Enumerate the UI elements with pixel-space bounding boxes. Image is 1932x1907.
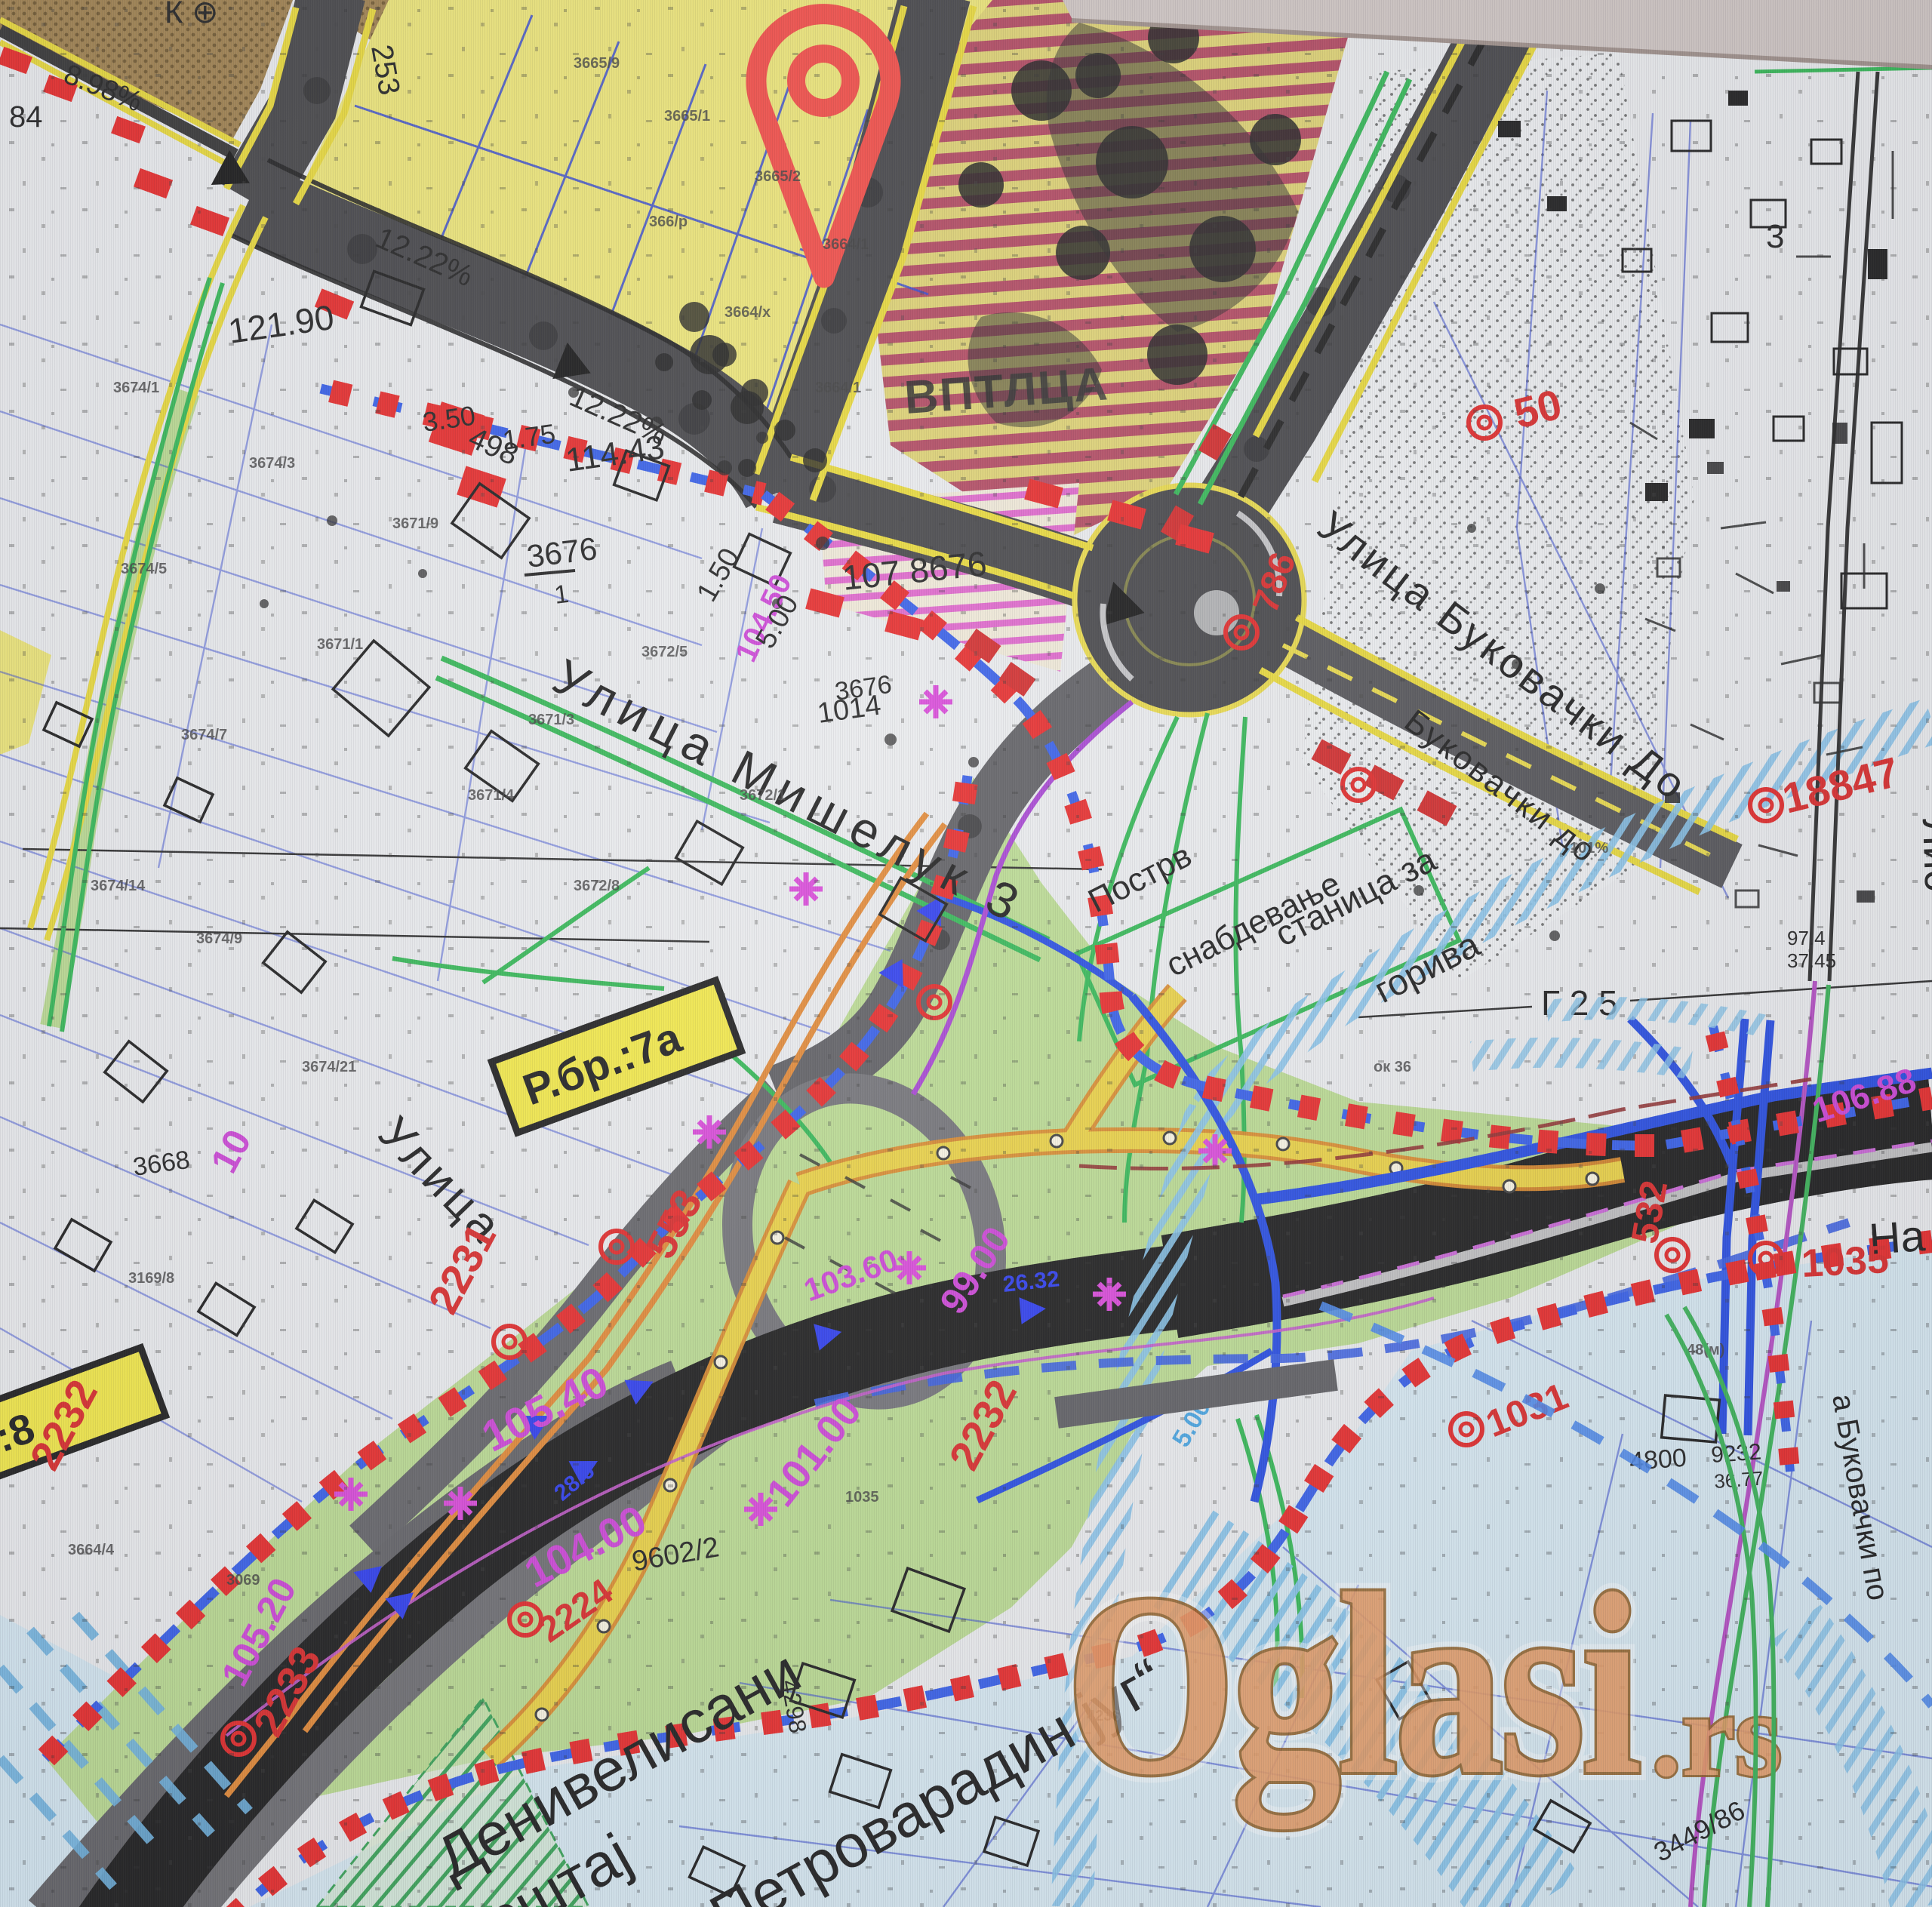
svg-text:3672/1: 3672/1 <box>740 787 786 804</box>
svg-text:3664/х: 3664/х <box>724 304 771 321</box>
svg-text:К ⊕: К ⊕ <box>165 0 218 29</box>
svg-text:97.4: 97.4 <box>1787 927 1826 949</box>
svg-text:ок 36: ок 36 <box>1374 1059 1411 1075</box>
svg-text:3664/1: 3664/1 <box>815 380 861 396</box>
svg-text:3665/1: 3665/1 <box>664 108 710 125</box>
svg-text:3664/1: 3664/1 <box>823 236 869 253</box>
svg-text:3671/4: 3671/4 <box>468 787 515 804</box>
svg-text:3665/2: 3665/2 <box>755 168 801 185</box>
svg-text:3665/9: 3665/9 <box>574 55 620 72</box>
svg-text:101%: 101% <box>1570 840 1608 857</box>
svg-text:9232: 9232 <box>1710 1439 1762 1468</box>
svg-text:Oglasi: Oglasi <box>1066 1539 1639 1832</box>
svg-text:3674/5: 3674/5 <box>121 561 167 577</box>
svg-text:3664/4: 3664/4 <box>68 1542 115 1558</box>
svg-text:3: 3 <box>1766 218 1784 255</box>
svg-text:3674/1: 3674/1 <box>113 380 159 396</box>
svg-text:84: 84 <box>9 100 43 134</box>
svg-text:37.45: 37.45 <box>1787 949 1836 972</box>
svg-text:3674/21: 3674/21 <box>302 1059 356 1075</box>
svg-text:3672/5: 3672/5 <box>641 644 688 660</box>
svg-text:3674/3: 3674/3 <box>249 455 295 472</box>
svg-text:3671/1: 3671/1 <box>317 636 363 653</box>
svg-text:1035: 1035 <box>845 1489 879 1506</box>
svg-text:3674/9: 3674/9 <box>196 930 242 947</box>
svg-text:366/р: 366/р <box>649 214 688 230</box>
svg-text:3671/3: 3671/3 <box>528 712 574 728</box>
svg-text:1035: 1035 <box>1801 1238 1890 1286</box>
svg-text:3674/7: 3674/7 <box>181 727 227 743</box>
svg-text:3069: 3069 <box>226 1572 260 1589</box>
svg-text:3674/14: 3674/14 <box>91 878 146 894</box>
svg-text:3672/8: 3672/8 <box>574 878 620 894</box>
svg-text:.rs: .rs <box>1651 1667 1782 1801</box>
svg-text:3671/9: 3671/9 <box>392 515 438 532</box>
svg-text:3169/8: 3169/8 <box>128 1270 174 1287</box>
svg-text:Лис: Лис <box>1914 817 1932 891</box>
